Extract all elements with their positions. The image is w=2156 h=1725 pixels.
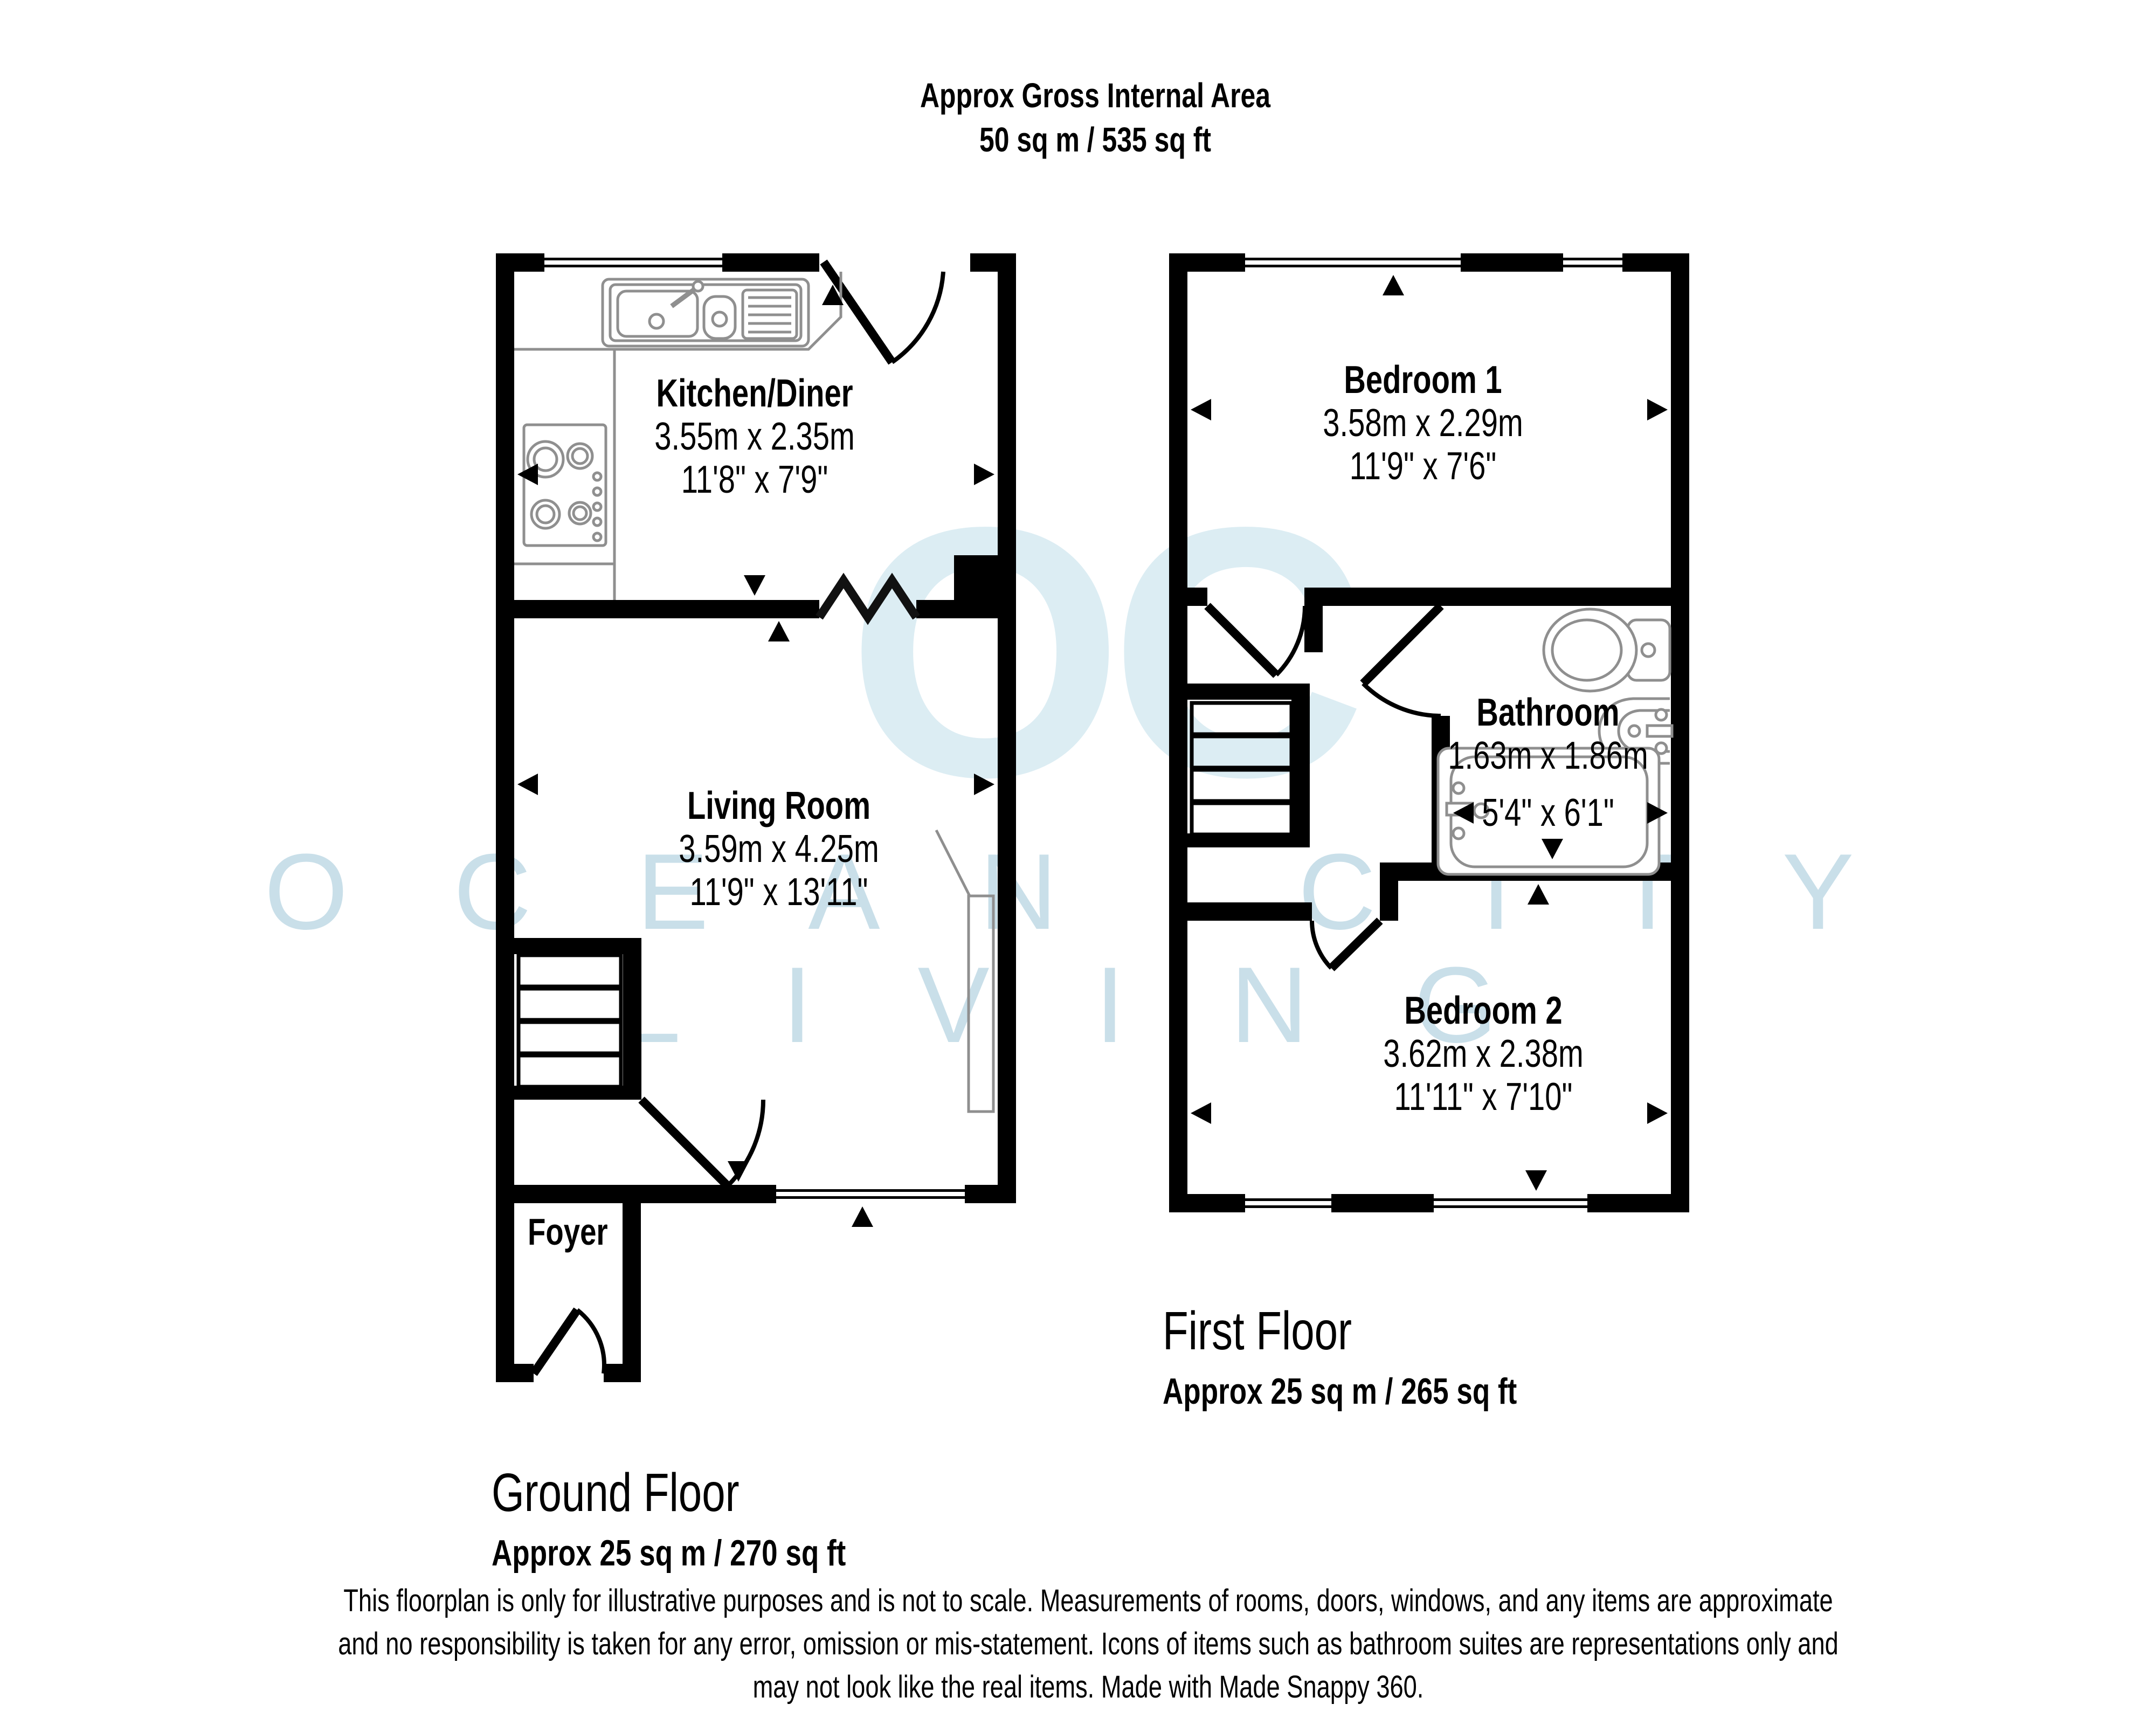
first-floor-title: First Floor <box>1163 1300 1352 1362</box>
foyer-door-icon <box>534 1310 604 1382</box>
room-dim-metric: 3.55m x 2.35m <box>654 415 854 458</box>
gray-door-icon <box>936 830 993 1112</box>
room-dim-metric: 1.63m x 1.86m <box>1448 734 1648 777</box>
arrow-right-icon <box>974 464 994 485</box>
arrow-down-icon <box>728 1161 749 1182</box>
bathroom-label: Bathroom 1.63m x 1.86m 5'4" x 6'1" <box>1448 691 1648 834</box>
room-name: Bedroom 1 <box>1323 358 1523 402</box>
kitchen-window-icon <box>544 251 722 274</box>
foyer-label: Foyer <box>528 1210 608 1253</box>
bedroom2-door-icon <box>1312 921 1380 968</box>
bedroom1-label: Bedroom 1 3.58m x 2.29m 11'9" x 7'6" <box>1323 358 1523 488</box>
disclaimer-line1: This floorplan is only for illustrative … <box>338 1579 1839 1623</box>
first-floor-area: Approx 25 sq m / 265 sq ft <box>1163 1370 1517 1412</box>
toilet-icon <box>1544 609 1670 691</box>
arrow-up-icon <box>852 1206 873 1227</box>
bedroom2-label: Bedroom 2 3.62m x 2.38m 11'11" x 7'10" <box>1383 989 1583 1119</box>
arrow-up-icon <box>1528 884 1549 905</box>
arrow-up-icon <box>1383 275 1404 295</box>
room-dim-imperial: 11'11" x 7'10" <box>1383 1075 1583 1119</box>
room-dim-metric: 3.58m x 2.29m <box>1323 402 1523 445</box>
arrow-left-icon <box>1191 1102 1211 1124</box>
room-dim-metric: 3.59m x 4.25m <box>679 827 879 871</box>
living-room-label: Living Room 3.59m x 4.25m 11'9" x 13'11" <box>679 784 879 914</box>
arrow-down-icon <box>1525 1170 1547 1191</box>
kitchen-sink-icon <box>603 279 808 346</box>
folding-door-icon <box>819 581 916 617</box>
room-dim-imperial: 5'4" x 6'1" <box>1448 791 1648 834</box>
room-dim-metric: 3.62m x 2.38m <box>1383 1032 1583 1075</box>
page-title: Approx Gross Internal Area 50 sq m / 535… <box>920 73 1270 162</box>
ground-floor-area: Approx 25 sq m / 270 sq ft <box>492 1532 846 1574</box>
disclaimer-line2: and no responsibility is taken for any e… <box>338 1623 1839 1666</box>
arrow-left-icon <box>517 774 538 795</box>
stairs-ground-icon <box>514 938 641 1100</box>
bathroom-door-icon <box>1363 606 1441 716</box>
stairs-first-icon <box>1187 684 1310 847</box>
disclaimer: This floorplan is only for illustrative … <box>338 1579 1839 1709</box>
room-dim-imperial: 11'8" x 7'9" <box>654 458 854 501</box>
disclaimer-line3: may not look like the real items. Made w… <box>338 1666 1839 1709</box>
room-name: Living Room <box>679 784 879 827</box>
room-dim-imperial: 11'9" x 13'11" <box>679 871 879 914</box>
kitchen-label: Kitchen/Diner 3.55m x 2.35m 11'8" x 7'9" <box>654 372 854 501</box>
title-line2: 50 sq m / 535 sq ft <box>920 118 1270 162</box>
title-line1: Approx Gross Internal Area <box>920 73 1270 118</box>
floorplan-page: OC O C E A N C I T Y L I V I N G <box>0 0 2156 1725</box>
hob-icon <box>524 425 606 546</box>
living-window-icon <box>776 1183 965 1205</box>
arrow-up-icon <box>768 621 790 641</box>
room-name: Kitchen/Diner <box>654 372 854 415</box>
arrow-right-icon <box>1647 1102 1668 1124</box>
living-door-icon <box>641 1100 763 1186</box>
bedroom1-window-icon <box>1245 251 1622 274</box>
arrow-down-icon <box>744 575 765 596</box>
room-name: Bathroom <box>1448 691 1648 734</box>
ground-floor-title: Ground Floor <box>492 1462 740 1524</box>
room-dim-imperial: 11'9" x 7'6" <box>1323 445 1523 488</box>
arrow-right-icon <box>1647 399 1668 420</box>
arrow-right-icon <box>974 774 994 795</box>
room-name: Bedroom 2 <box>1383 989 1583 1032</box>
floorplan-drawing <box>0 0 2156 1725</box>
arrow-left-icon <box>1191 399 1211 420</box>
bedroom1-door-icon <box>1207 606 1305 675</box>
